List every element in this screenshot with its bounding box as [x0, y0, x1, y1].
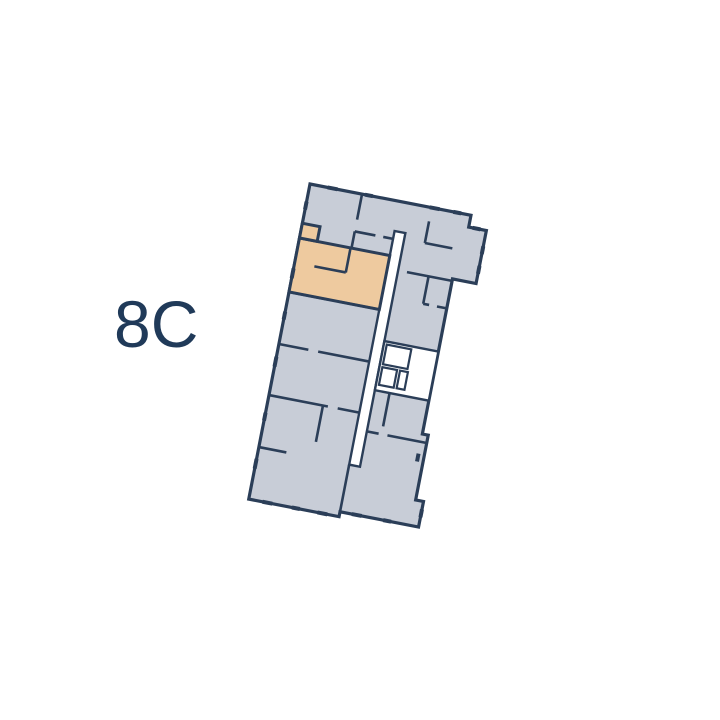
elevator-shaft — [379, 367, 397, 388]
selected-unit-balcony[interactable] — [300, 223, 321, 241]
floor-plan — [0, 0, 720, 720]
elevator-shaft — [383, 345, 411, 369]
page: 8C — [0, 0, 720, 720]
